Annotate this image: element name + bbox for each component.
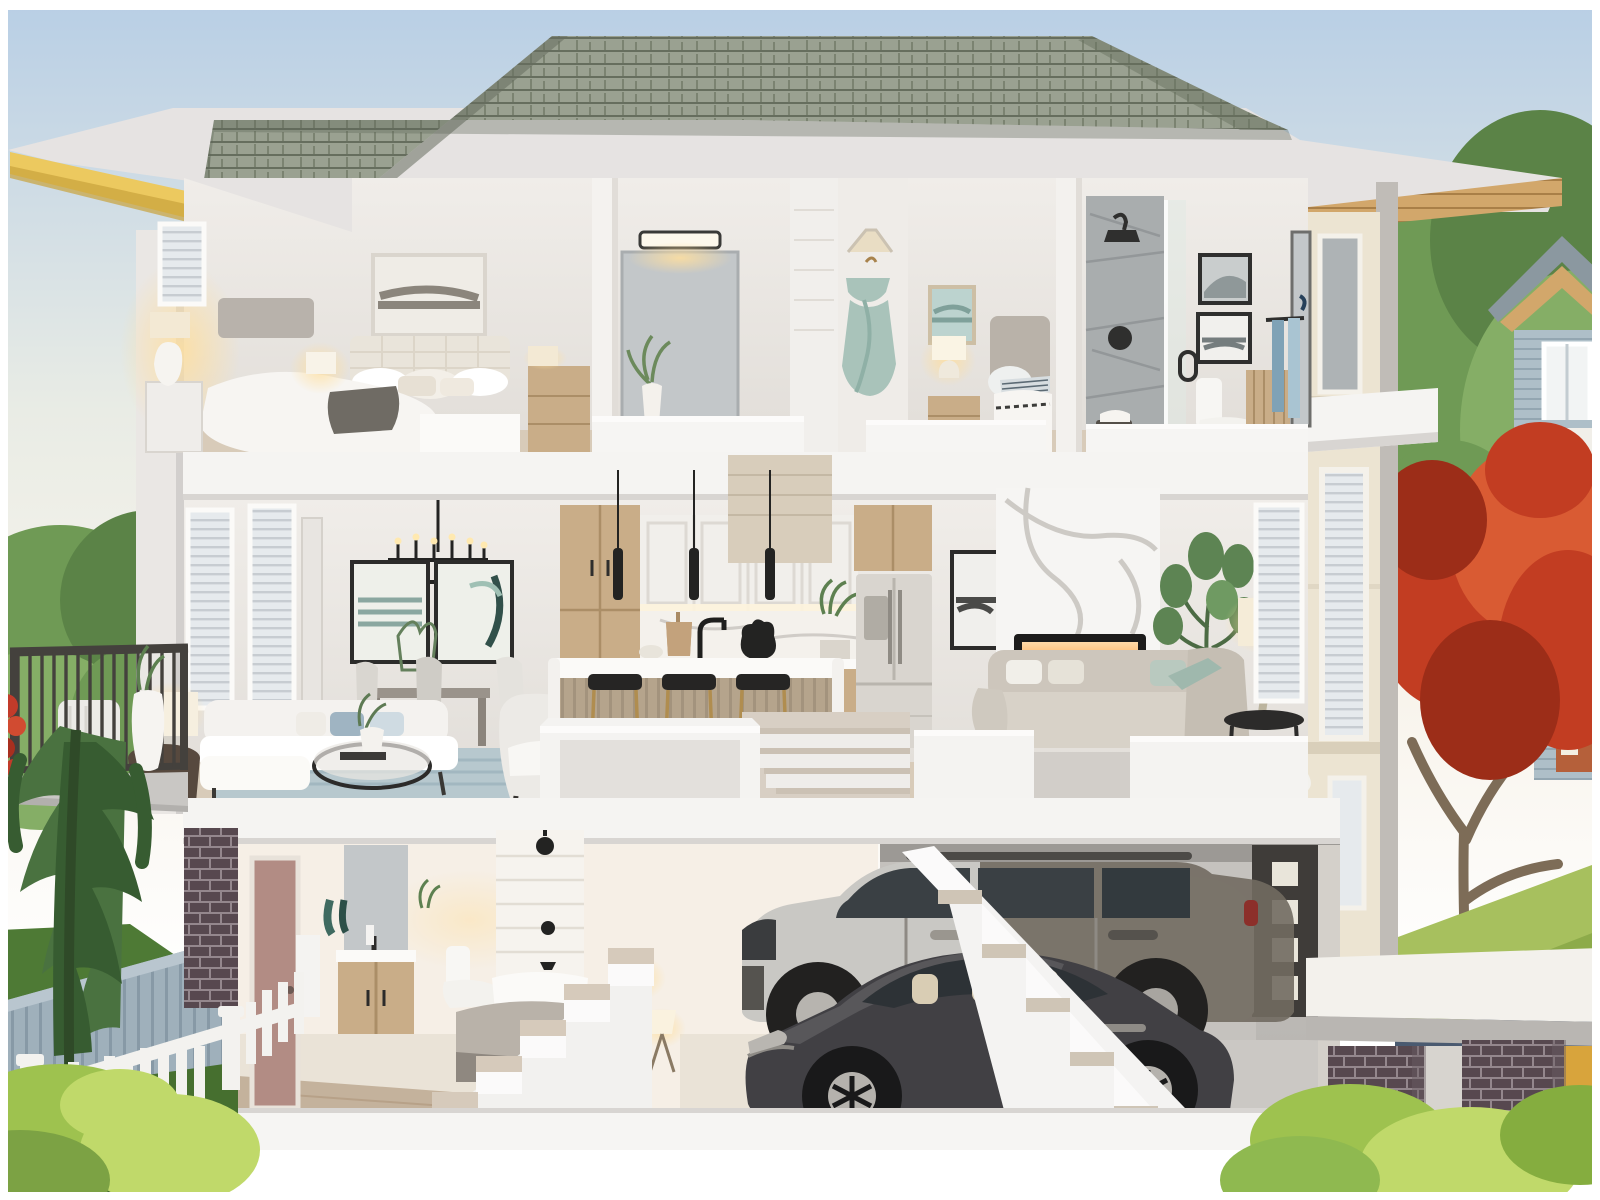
window-left-1 [188, 510, 232, 708]
water-dispenser [864, 596, 888, 640]
balcony-door [302, 518, 322, 714]
upper-floor: upper floor [120, 178, 1310, 456]
bed-throw [328, 386, 399, 434]
main-stairs [742, 712, 910, 800]
range-hood [728, 455, 832, 563]
window-left-2 [250, 506, 294, 704]
tail-light [1244, 900, 1258, 926]
brick-corner [184, 828, 238, 1008]
shower-control [1108, 326, 1132, 350]
main-floor: main floor [128, 455, 1311, 814]
cutaway-rendering: townhouse cross-section [0, 0, 1600, 1200]
floor-slab-main [183, 798, 1340, 844]
kettle [741, 619, 776, 660]
fridge [854, 505, 932, 748]
nightstand [146, 382, 202, 452]
dress-on-hanger [842, 258, 896, 396]
scene-canvas: townhouse cross-section [0, 0, 1600, 1200]
roof-rails [906, 852, 1192, 860]
closet-column [790, 178, 908, 454]
window-right-1 [1256, 505, 1302, 701]
vanity-mirror [622, 252, 738, 424]
side-window-upper [1320, 236, 1360, 392]
shower-head [1104, 230, 1140, 242]
mauve-door [252, 858, 298, 1108]
lower-mirror [344, 845, 408, 950]
accent-headboard [218, 298, 314, 338]
bedroom-window [160, 224, 204, 304]
side-window-main [1322, 470, 1366, 738]
